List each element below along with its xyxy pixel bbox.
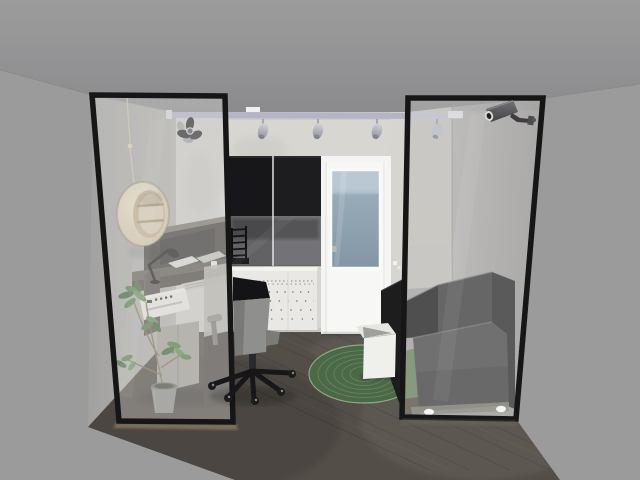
track-cap-through-glass [448,111,463,118]
caster-dot [212,384,214,386]
sofa-foot [496,406,506,412]
track-connector [246,107,260,112]
caster [224,394,232,402]
door-glass-sky [331,170,380,189]
scene-3d-render [0,0,640,480]
ladder-rung [231,236,247,237]
ladder-rung [231,242,247,243]
chair-seat-edge [266,330,280,346]
chair-column [249,354,256,371]
balcony-door[interactable] [321,156,391,335]
caster [208,382,216,390]
glass-partition-right[interactable] [402,98,543,419]
cabinet-divider-highlight [272,156,274,266]
cabinet-left-door-shade [229,156,273,216]
back-wall-through-glass [407,107,452,289]
socket-plate [393,261,397,265]
sofa-foot [424,409,434,415]
glass-partition-left[interactable] [92,95,233,422]
caster [277,388,285,396]
box-front [363,334,396,379]
caster-dot [292,372,294,374]
caster-dot [255,399,257,401]
camera-mount-tip [532,118,536,122]
chair-back-shade [233,300,245,356]
ladder-rung [231,249,247,250]
caster-dot [228,396,230,398]
room-planner-viewport[interactable] [0,0,640,480]
door-handle[interactable] [333,246,337,252]
drawer-top-lip [231,267,318,271]
caster-dot [281,390,283,392]
caster [288,370,296,378]
chair-leg [252,371,290,373]
socket-plate [398,266,401,269]
ladder-rung [231,229,247,230]
wall-cabinet[interactable] [227,156,322,266]
caster [251,397,259,405]
